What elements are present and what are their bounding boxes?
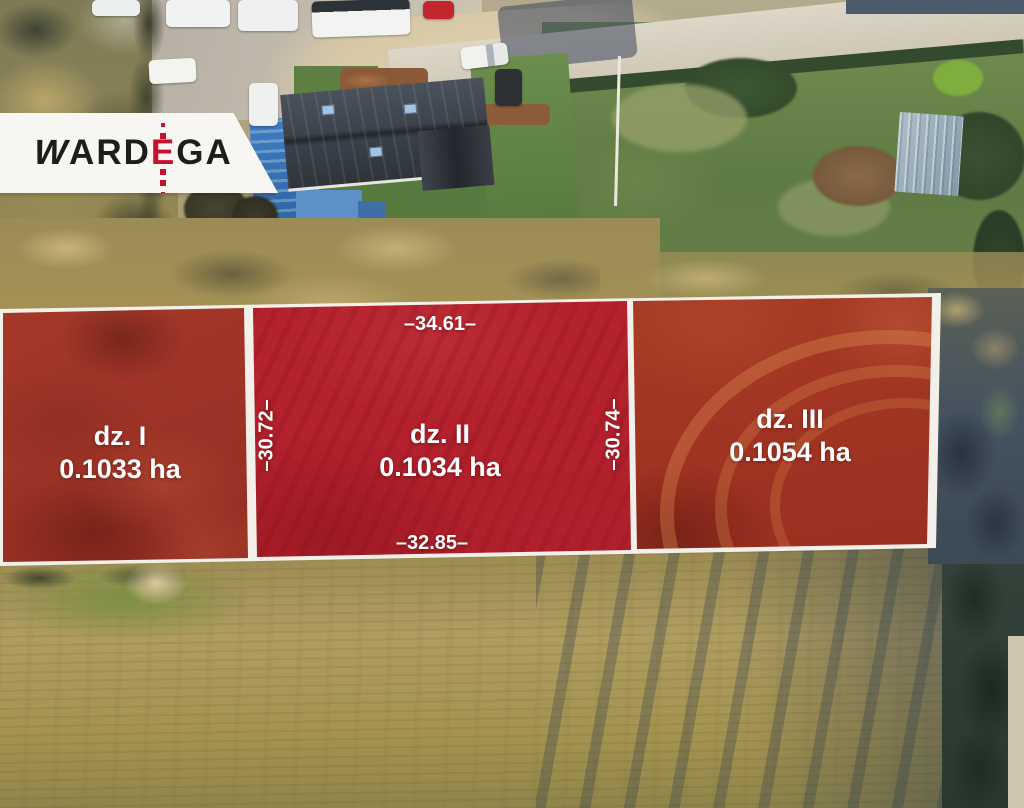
parcel-label-dz-1: dz. I 0.1033 ha bbox=[20, 420, 220, 486]
logo-banner: W ARD E GA bbox=[0, 113, 278, 193]
pale-bare-tree bbox=[126, 562, 186, 604]
terrain-right-of-parcels bbox=[928, 288, 1024, 564]
white-car-on-driveway bbox=[148, 58, 196, 84]
measurement-bottom: –32.85– bbox=[342, 532, 522, 555]
garden-shed-roof bbox=[894, 112, 963, 196]
logo-letters-ga: GA bbox=[176, 133, 233, 173]
soil-patch bbox=[813, 146, 903, 206]
wardega-logo: W ARD E GA bbox=[0, 133, 233, 173]
skylight bbox=[403, 103, 417, 114]
measurement-left: –30.72– bbox=[256, 372, 279, 500]
logo-letters-ard: ARD bbox=[69, 133, 151, 173]
house-roof-wing bbox=[418, 125, 495, 191]
white-camper bbox=[166, 0, 230, 27]
white-camper bbox=[238, 0, 298, 31]
parcel-area: 0.1054 ha bbox=[690, 436, 890, 469]
white-vehicle bbox=[92, 0, 140, 16]
parcel-name: dz. I bbox=[20, 420, 220, 453]
logo-dots-below-icon bbox=[160, 169, 166, 175]
measurement-right: –30.74– bbox=[603, 371, 626, 499]
parcel-area: 0.1034 ha bbox=[340, 451, 540, 484]
logo-dots-above-icon bbox=[160, 133, 166, 139]
white-camper bbox=[311, 0, 410, 38]
terrain-topright-dark bbox=[846, 0, 1024, 14]
path-right-edge bbox=[1008, 636, 1024, 808]
logo-accent-e-wrap: E bbox=[151, 133, 176, 173]
parcel-label-dz-3: dz. III 0.1054 ha bbox=[690, 403, 890, 469]
white-van bbox=[249, 83, 278, 126]
parcel-name: dz. II bbox=[340, 418, 540, 451]
skylight bbox=[369, 146, 383, 157]
dark-car bbox=[495, 69, 522, 106]
logo-letter-w: W bbox=[29, 133, 74, 173]
aerial-photo: dz. I 0.1033 ha dz. II 0.1034 ha dz. III… bbox=[0, 0, 1024, 808]
parcel-label-dz-2: dz. II 0.1034 ha bbox=[340, 418, 540, 484]
parcel-name: dz. III bbox=[690, 403, 890, 436]
dry-grass-patch bbox=[612, 84, 747, 152]
parcel-area: 0.1033 ha bbox=[20, 453, 220, 486]
measurement-top: –34.61– bbox=[350, 313, 530, 336]
red-car bbox=[423, 1, 454, 19]
skylight bbox=[321, 104, 335, 115]
green-patch bbox=[933, 60, 983, 96]
